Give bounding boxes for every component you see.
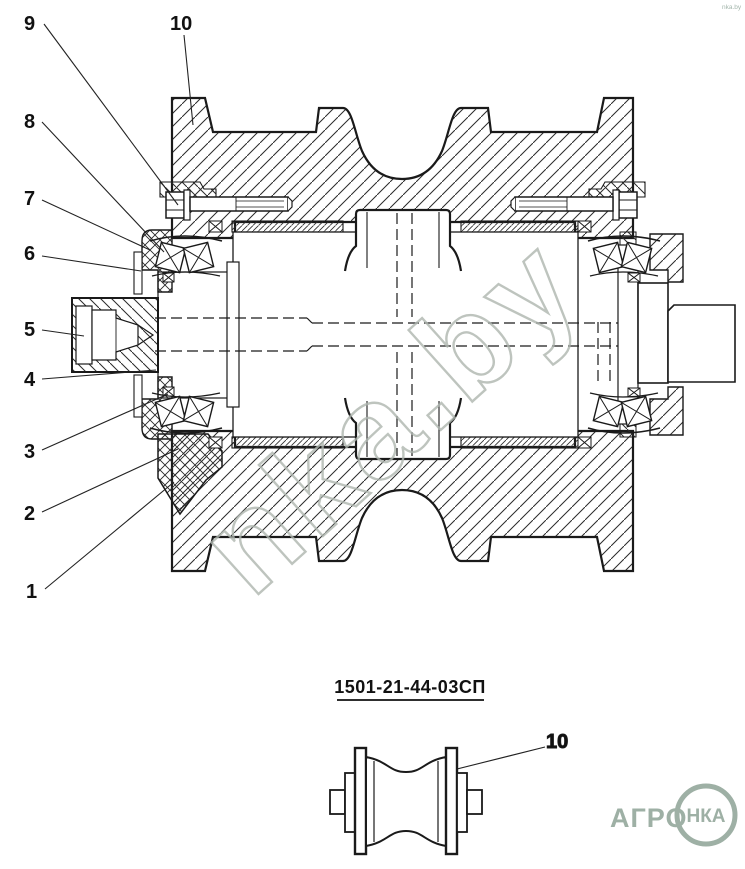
- axle-right-stub: [668, 305, 735, 382]
- callout-8: 8: [24, 111, 35, 133]
- callout-3: 3: [24, 441, 35, 463]
- leader-9: [44, 24, 178, 205]
- leader-1: [45, 482, 174, 589]
- axle-right-step: [638, 283, 668, 383]
- agro-nka-logo: АГРО НКА: [610, 786, 735, 844]
- axle-end-cap: [72, 298, 158, 372]
- callout-1: 1: [26, 581, 37, 603]
- part-number: 1501-21-44-03СП: [334, 677, 486, 700]
- callout-5: 5: [24, 319, 35, 341]
- callout-10-detail: 10: [546, 731, 568, 753]
- leader-6: [42, 256, 141, 271]
- corner-watermark: nka.by: [722, 4, 742, 11]
- leader-8: [42, 122, 164, 252]
- leader-7: [42, 200, 150, 250]
- left-thrust-washer: [227, 262, 239, 407]
- main-drawing: 9 10 8 7 6 5 4 3 2 1 1501-21-44-03СП 10 …: [0, 0, 745, 869]
- callout-4: 4: [24, 369, 36, 391]
- leader-2: [42, 449, 178, 512]
- callout-7: 7: [24, 188, 35, 210]
- callout-6: 6: [24, 243, 35, 265]
- part-number-text: 1501-21-44-03СП: [334, 677, 486, 697]
- callout-2: 2: [24, 503, 35, 525]
- axle-top-boss: [345, 210, 461, 271]
- logo-badge-text: НКА: [686, 806, 725, 827]
- callout-9: 9: [24, 13, 35, 35]
- roller-side-view: 10: [330, 731, 568, 854]
- diagram-canvas: 9 10 8 7 6 5 4 3 2 1 1501-21-44-03СП 10 …: [0, 0, 745, 869]
- callout-10: 10: [170, 13, 192, 35]
